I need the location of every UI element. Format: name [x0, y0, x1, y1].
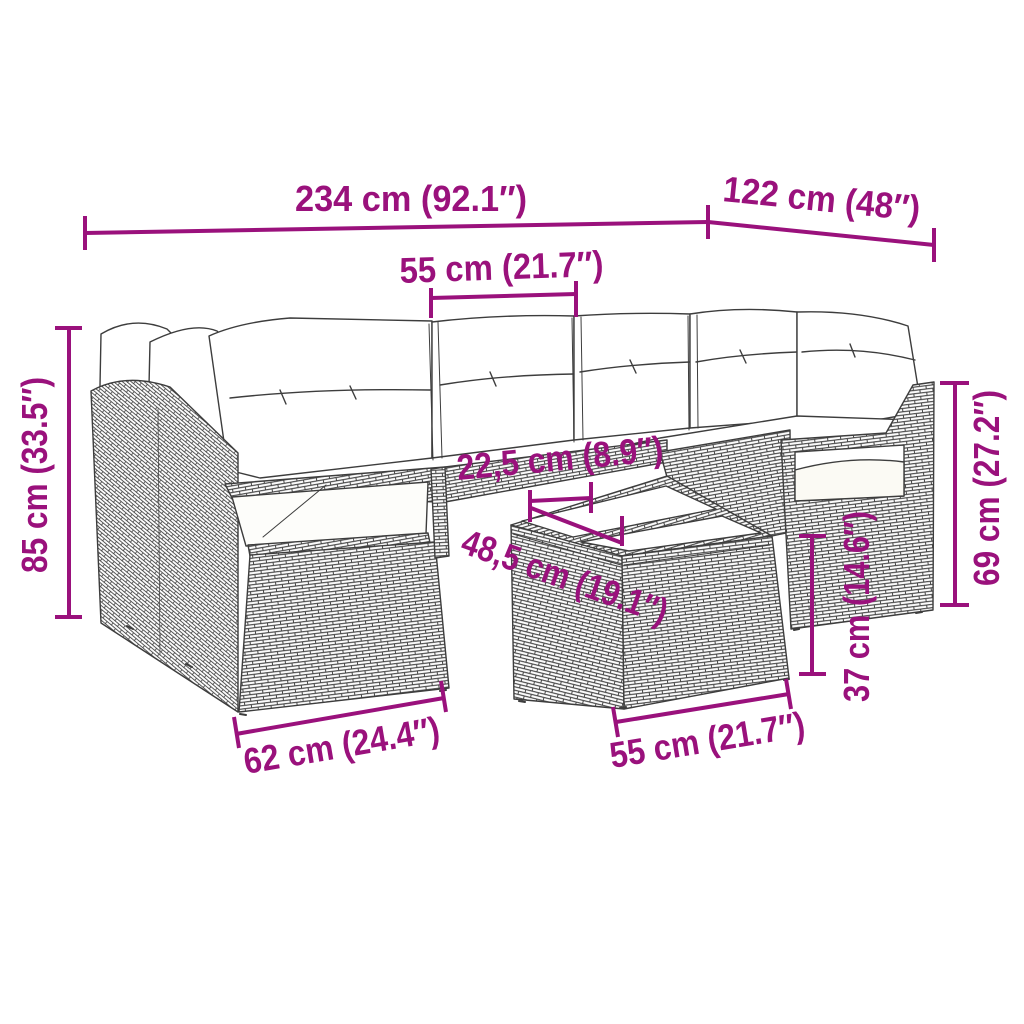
svg-text:55 cm (21.7″): 55 cm (21.7″) [399, 243, 604, 291]
svg-text:85 cm (33.5″): 85 cm (33.5″) [14, 377, 55, 573]
svg-text:69 cm (27.2″): 69 cm (27.2″) [966, 390, 1007, 586]
svg-text:37 cm (14.6″): 37 cm (14.6″) [836, 511, 877, 702]
svg-text:234 cm (92.1″): 234 cm (92.1″) [295, 178, 527, 219]
